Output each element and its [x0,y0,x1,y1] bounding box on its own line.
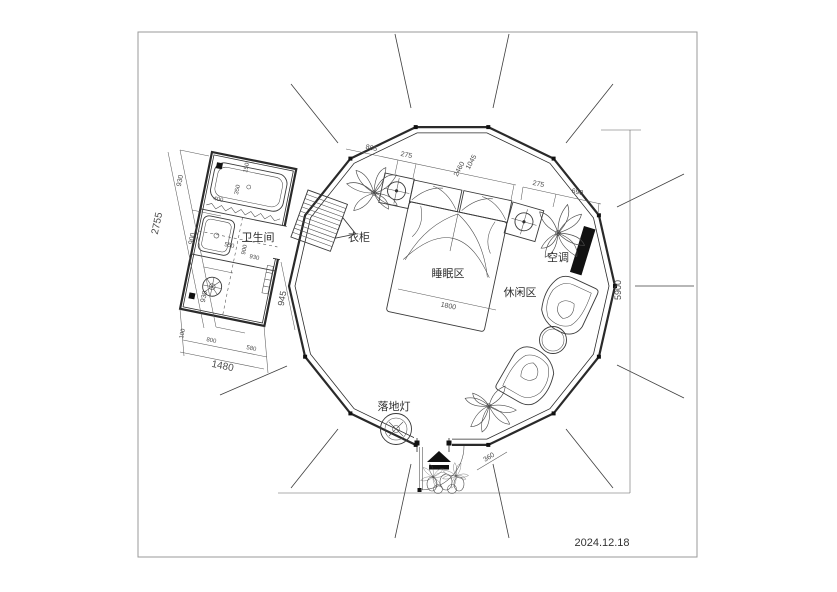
leisure-area-label: 休闲区 [504,285,537,299]
air-conditioner-label: 空调 [547,250,569,264]
sleeping-area-label: 睡眠区 [432,267,465,280]
floor-drain-square-2 [188,292,195,299]
floor-drain-square [216,162,223,169]
floor-plan-page: 卫生间 衣柜 睡眠区 休闲区 空调 落地灯 2024.12.18 5900 80… [0,0,837,592]
floor-plan-canvas: 卫生间 衣柜 睡眠区 休闲区 空调 落地灯 2024.12.18 5900 80… [0,0,837,592]
wardrobe-label: 衣柜 [348,230,370,244]
drawing-date: 2024.12.18 [574,537,629,549]
dim-overall-height: 5900 [613,280,623,300]
floor-lamp-symbol [381,414,412,445]
floor-lamp-label: 落地灯 [378,400,411,413]
bathroom-label: 卫生间 [242,230,275,244]
